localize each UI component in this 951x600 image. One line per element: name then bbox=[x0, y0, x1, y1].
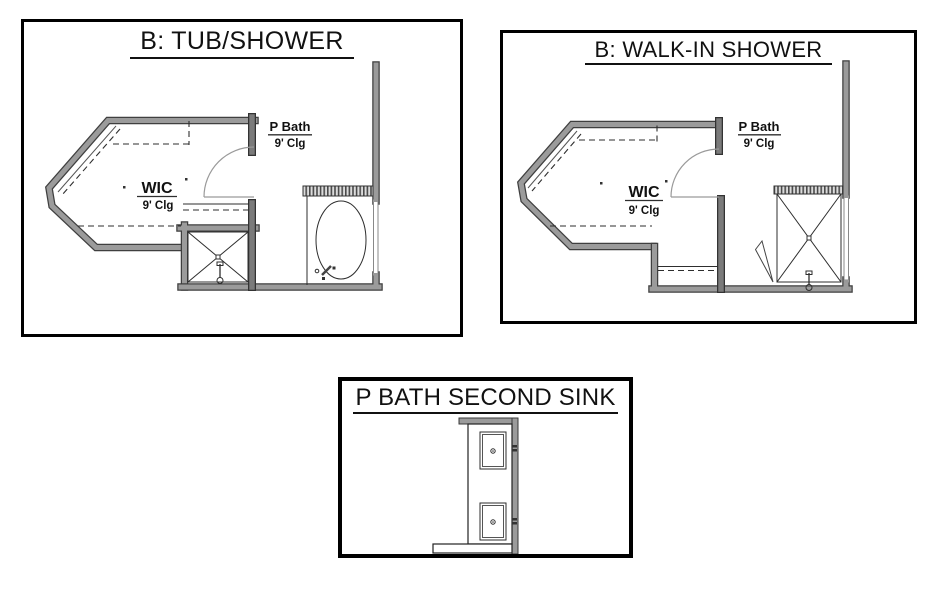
svg-text:WIC: WIC bbox=[628, 184, 660, 201]
door-jambs bbox=[719, 121, 721, 289]
tub-faucet-icon bbox=[315, 266, 335, 280]
wic-entry-door bbox=[204, 147, 254, 197]
window bbox=[844, 196, 850, 283]
window bbox=[373, 200, 379, 276]
label-wic: WIC 9' Clg bbox=[137, 180, 177, 212]
panel-title-text: B: TUB/SHOWER bbox=[130, 28, 353, 59]
panel-title-tub-shower: B: TUB/SHOWER bbox=[24, 27, 460, 59]
wic-room-walls bbox=[521, 125, 719, 247]
shower-ledge-hatch bbox=[774, 186, 843, 194]
label-p-bath: P Bath 9' Clg bbox=[268, 119, 312, 150]
svg-text:P Bath: P Bath bbox=[270, 119, 311, 134]
tub-ledge-hatch bbox=[303, 186, 373, 196]
wic-entry-door bbox=[671, 149, 719, 197]
door-swing-arc bbox=[671, 149, 719, 197]
panel-title-second-sink: P BATH SECOND SINK bbox=[342, 384, 629, 414]
vanity-counter bbox=[468, 424, 512, 544]
svg-text:9' Clg: 9' Clg bbox=[629, 205, 660, 217]
door-swing-arc bbox=[204, 147, 254, 197]
label-wic: WIC 9' Clg bbox=[625, 184, 663, 217]
svg-text:9' Clg: 9' Clg bbox=[744, 138, 775, 150]
shower-drain bbox=[216, 255, 220, 259]
perimeter-walls bbox=[181, 65, 379, 287]
shower-head-icon bbox=[217, 262, 223, 284]
panel-title-text: P BATH SECOND SINK bbox=[353, 385, 617, 414]
svg-text:P Bath: P Bath bbox=[739, 119, 780, 134]
walk-in-shower-plan: P Bath 9' Clg WIC 9' Clg bbox=[503, 33, 914, 321]
corridor-lines bbox=[658, 267, 718, 271]
counter-return bbox=[433, 544, 512, 553]
panel-title-walk-in-shower: B: WALK-IN SHOWER bbox=[503, 37, 914, 65]
panel-tub-shower: B: TUB/SHOWER bbox=[21, 19, 463, 337]
svg-text:9' Clg: 9' Clg bbox=[275, 138, 306, 150]
tub-shower-plan: P Bath 9' Clg WIC 9' Clg bbox=[24, 22, 460, 334]
shower-door-leaf bbox=[756, 241, 774, 282]
svg-text:WIC: WIC bbox=[141, 180, 173, 197]
label-p-bath: P Bath 9' Clg bbox=[738, 119, 781, 150]
panel-second-sink: P BATH SECOND SINK bbox=[338, 377, 633, 558]
shower-drain bbox=[807, 236, 811, 240]
perimeter-walls bbox=[652, 64, 849, 289]
floor-plan-sheet: B: TUB/SHOWER bbox=[0, 0, 951, 600]
panel-walk-in-shower: B: WALK-IN SHOWER bbox=[500, 30, 917, 324]
panel-title-text: B: WALK-IN SHOWER bbox=[585, 38, 833, 65]
shower-pan bbox=[777, 194, 841, 282]
svg-text:9' Clg: 9' Clg bbox=[143, 200, 174, 212]
linen-alcove bbox=[183, 204, 249, 210]
shower-pan bbox=[188, 232, 248, 282]
